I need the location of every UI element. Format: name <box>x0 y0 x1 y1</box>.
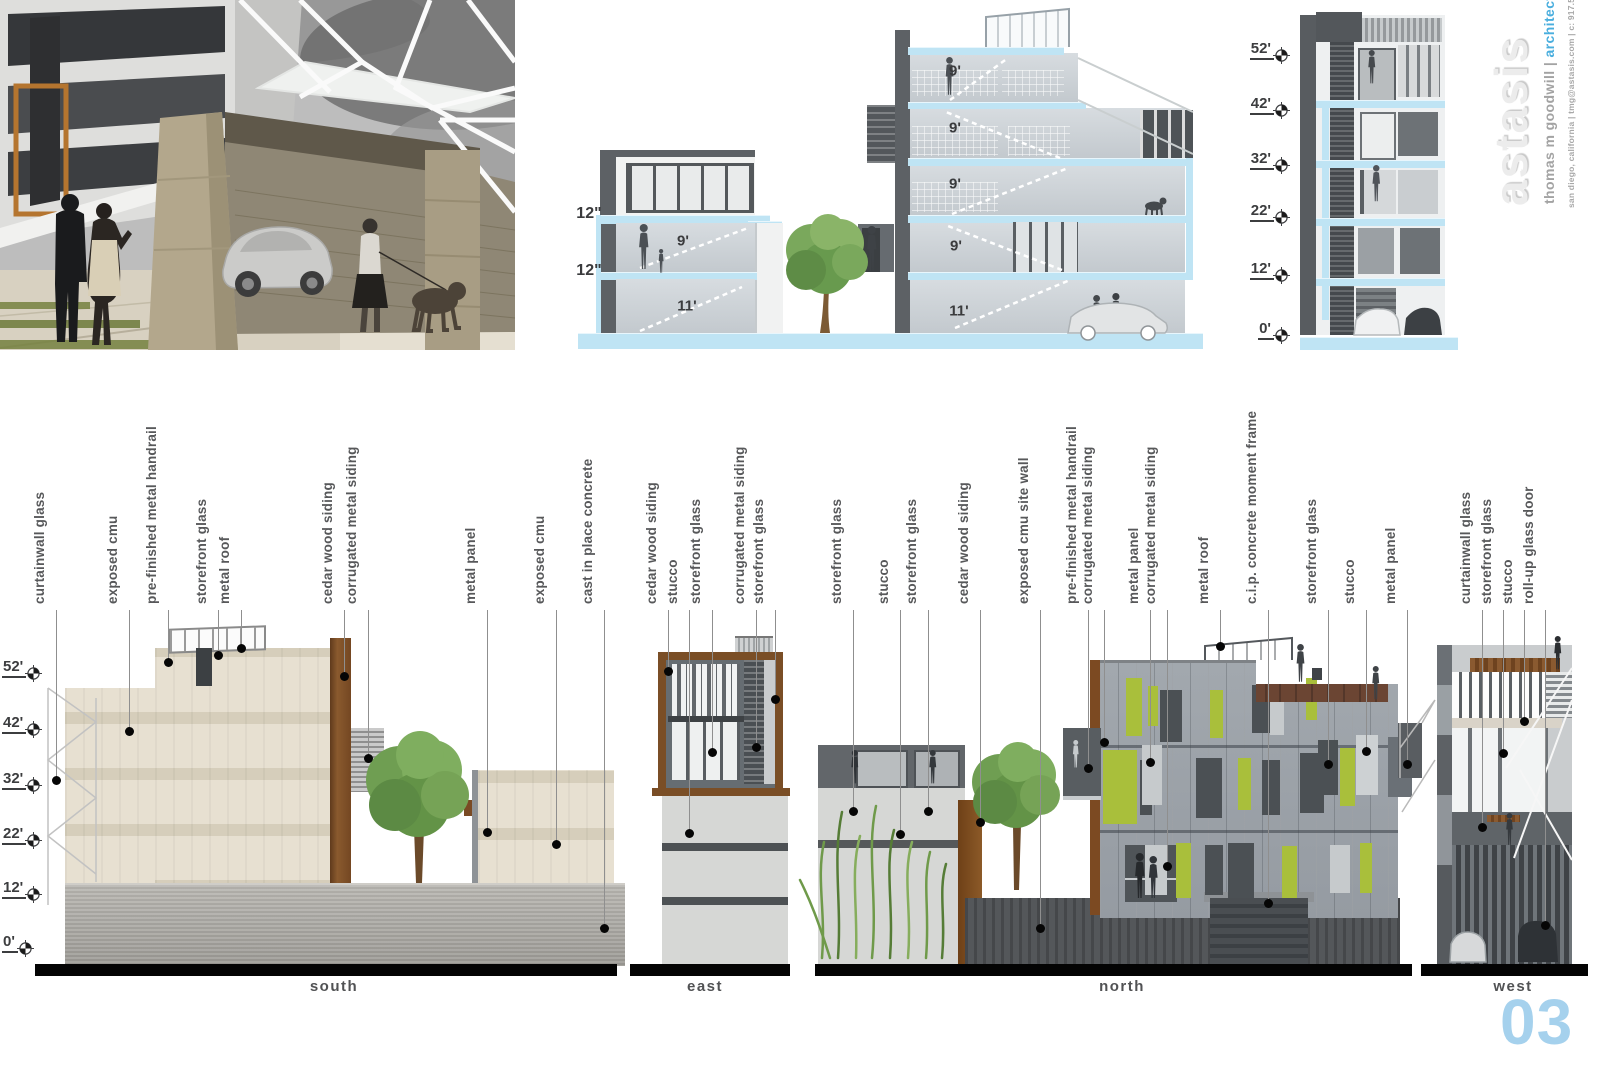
floor-height-label: 9' <box>677 234 689 249</box>
level-marker-label: 52' <box>1250 41 1274 60</box>
callout-dot <box>1541 921 1550 930</box>
callout-leader-line <box>689 610 690 833</box>
material-callout-label: roll-up glass door <box>1520 486 1537 604</box>
callout-dot <box>1520 717 1529 726</box>
level-marker-22: 22' <box>2 826 42 845</box>
callout-dot <box>685 829 694 838</box>
level-marker-label: 0' <box>2 934 18 953</box>
south-elevation-title: south <box>310 979 358 994</box>
callout-dot <box>664 667 673 676</box>
crosshair-icon <box>17 940 34 957</box>
callout-leader-line <box>900 610 901 834</box>
material-callout-label: stucco <box>1499 559 1516 604</box>
callout-leader-line <box>775 610 776 699</box>
level-marker-12: 12' <box>1232 261 1290 280</box>
callout-dot <box>1324 760 1333 769</box>
material-callout-label: exposed cmu <box>531 516 548 604</box>
callout-leader-line <box>368 610 369 758</box>
callout-dot <box>364 754 373 763</box>
material-callout-label: cedar wood siding <box>643 482 660 604</box>
callout-leader-line <box>1104 610 1105 742</box>
callout-leader-line <box>604 610 605 928</box>
callout-dot <box>164 658 173 667</box>
material-callout-label: curtainwall glass <box>31 492 48 604</box>
slab-dimension-label: 12" <box>576 206 601 222</box>
material-callout-label: corrugated metal siding <box>731 446 748 604</box>
callout-dot <box>1163 862 1172 871</box>
callout-leader-line <box>928 610 929 811</box>
presentation-board: 52'42'32'22'12'0'52'42'32'22'12'0'12"12"… <box>0 0 1600 1067</box>
callout-leader-line <box>980 610 981 822</box>
callout-dot <box>1216 642 1225 651</box>
material-callout-label: metal panel <box>1125 528 1142 604</box>
material-callout-label: storefront glass <box>1478 499 1495 604</box>
level-marker-12: 12' <box>2 880 42 899</box>
callout-dot <box>1362 747 1371 756</box>
material-callout-label: stucco <box>664 559 681 604</box>
floor-height-label: 9' <box>949 64 961 79</box>
material-callout-label: c.i.p. concrete moment frame <box>1243 411 1260 604</box>
crosshair-icon <box>1273 157 1290 174</box>
material-callout-label: metal panel <box>1382 528 1399 604</box>
material-callout-label: storefront glass <box>903 499 920 604</box>
level-marker-label: 22' <box>1250 203 1274 222</box>
callout-dot <box>214 651 223 660</box>
level-marker-32: 32' <box>2 771 42 790</box>
crosshair-icon <box>1273 327 1290 344</box>
callout-leader-line <box>1167 610 1168 866</box>
material-callout-label: stucco <box>875 559 892 604</box>
callout-leader-line <box>712 610 713 752</box>
level-marker-label: 0' <box>1258 321 1274 340</box>
crosshair-icon <box>25 721 42 738</box>
level-marker-label: 22' <box>2 826 26 845</box>
annotation-layer: 52'42'32'22'12'0'52'42'32'22'12'0'12"12"… <box>0 0 1600 1067</box>
level-marker-0: 0' <box>2 934 34 953</box>
callout-leader-line <box>1407 610 1408 764</box>
callout-dot <box>771 695 780 704</box>
callout-leader-line <box>853 610 854 811</box>
callout-leader-line <box>1503 610 1504 753</box>
material-callout-label: cast in place concrete <box>579 459 596 604</box>
floor-height-label: 9' <box>949 121 961 136</box>
material-callout-label: cedar wood siding <box>955 482 972 604</box>
level-marker-label: 52' <box>2 659 26 678</box>
callout-leader-line <box>756 610 757 747</box>
material-callout-label: corrugated metal siding <box>1142 446 1159 604</box>
callout-leader-line <box>168 610 169 662</box>
callout-dot <box>849 807 858 816</box>
callout-dot <box>1403 760 1412 769</box>
callout-leader-line <box>1482 610 1483 827</box>
level-marker-label: 12' <box>1250 261 1274 280</box>
east-elevation-title-bar <box>630 964 790 976</box>
architect-name: thomas m goodwill <box>1541 66 1557 204</box>
firm-logo: astasis <box>1488 36 1534 206</box>
floor-height-label: 9' <box>949 177 961 192</box>
level-marker-52: 52' <box>1232 41 1290 60</box>
callout-leader-line <box>1268 610 1269 903</box>
material-callout-label: metal panel <box>462 528 479 604</box>
crosshair-icon <box>1273 47 1290 64</box>
callout-leader-line <box>1366 610 1367 751</box>
callout-dot <box>52 776 61 785</box>
east-elevation-title: east <box>687 979 723 994</box>
material-callout-label: storefront glass <box>828 499 845 604</box>
level-marker-label: 12' <box>2 880 26 899</box>
callout-dot <box>1478 823 1487 832</box>
architect-role: architect <box>1541 0 1557 58</box>
callout-dot <box>237 644 246 653</box>
firm-contact: san diego, california | tmg@astasis.com … <box>1567 0 1576 208</box>
level-marker-label: 32' <box>2 771 26 790</box>
material-callout-label: pre-finished metal handrail <box>1063 426 1080 604</box>
material-callout-label: corrugated metal siding <box>343 446 360 604</box>
level-marker-0: 0' <box>1232 321 1290 340</box>
page-number: 03 <box>1500 990 1573 1054</box>
callout-dot <box>1100 738 1109 747</box>
callout-leader-line <box>1150 610 1151 762</box>
callout-dot <box>976 818 985 827</box>
material-callout-label: exposed cmu site wall <box>1015 457 1032 604</box>
callout-leader-line <box>1328 610 1329 764</box>
slab-dimension-label: 12" <box>576 263 601 279</box>
crosshair-icon <box>25 886 42 903</box>
crosshair-icon <box>1273 267 1290 284</box>
material-callout-label: exposed cmu <box>104 516 121 604</box>
architect-credit: thomas m goodwill | architect <box>1542 0 1556 204</box>
callout-dot <box>600 924 609 933</box>
crosshair-icon <box>25 665 42 682</box>
north-elevation-title-bar <box>815 964 1412 976</box>
material-callout-label: cedar wood siding <box>319 482 336 604</box>
crosshair-icon <box>25 777 42 794</box>
callout-dot <box>752 743 761 752</box>
material-callout-label: storefront glass <box>750 499 767 604</box>
level-marker-label: 42' <box>2 715 26 734</box>
level-marker-42: 42' <box>1232 96 1290 115</box>
material-callout-label: metal roof <box>216 537 233 604</box>
material-callout-label: corrugated metal siding <box>1079 446 1096 604</box>
south-elevation-title-bar <box>35 964 617 976</box>
callout-dot <box>924 807 933 816</box>
callout-dot <box>1499 749 1508 758</box>
level-marker-32: 32' <box>1232 151 1290 170</box>
floor-height-label: 11' <box>677 299 696 314</box>
callout-dot <box>708 748 717 757</box>
callout-dot <box>896 830 905 839</box>
callout-dot <box>552 840 561 849</box>
callout-dot <box>340 672 349 681</box>
material-callout-label: stucco <box>1341 559 1358 604</box>
callout-dot <box>125 727 134 736</box>
callout-dot <box>1036 924 1045 933</box>
callout-dot <box>483 828 492 837</box>
callout-leader-line <box>1220 610 1221 646</box>
level-marker-42: 42' <box>2 715 42 734</box>
level-marker-label: 42' <box>1250 96 1274 115</box>
material-callout-label: storefront glass <box>1303 499 1320 604</box>
callout-leader-line <box>344 610 345 676</box>
callout-leader-line <box>1545 610 1546 925</box>
callout-leader-line <box>487 610 488 832</box>
callout-leader-line <box>1524 610 1525 721</box>
callout-leader-line <box>668 610 669 671</box>
callout-leader-line <box>218 610 219 655</box>
callout-dot <box>1146 758 1155 767</box>
level-marker-52: 52' <box>2 659 42 678</box>
callout-leader-line <box>1040 610 1041 928</box>
level-marker-label: 32' <box>1250 151 1274 170</box>
callout-dot <box>1084 764 1093 773</box>
callout-leader-line <box>56 610 57 780</box>
crosshair-icon <box>1273 209 1290 226</box>
callout-leader-line <box>1088 610 1089 768</box>
callout-dot <box>1264 899 1273 908</box>
callout-leader-line <box>129 610 130 731</box>
west-elevation-title-bar <box>1421 964 1588 976</box>
crosshair-icon <box>25 832 42 849</box>
callout-leader-line <box>241 610 242 648</box>
material-callout-label: metal roof <box>1195 537 1212 604</box>
material-callout-label: pre-finished metal handrail <box>143 426 160 604</box>
credit-divider: | <box>1541 58 1557 67</box>
floor-height-label: 9' <box>950 239 962 254</box>
material-callout-label: curtainwall glass <box>1457 492 1474 604</box>
material-callout-label: storefront glass <box>687 499 704 604</box>
crosshair-icon <box>1273 102 1290 119</box>
callout-leader-line <box>556 610 557 844</box>
level-marker-22: 22' <box>1232 203 1290 222</box>
north-elevation-title: north <box>1099 979 1145 994</box>
material-callout-label: storefront glass <box>193 499 210 604</box>
floor-height-label: 11' <box>949 304 968 319</box>
